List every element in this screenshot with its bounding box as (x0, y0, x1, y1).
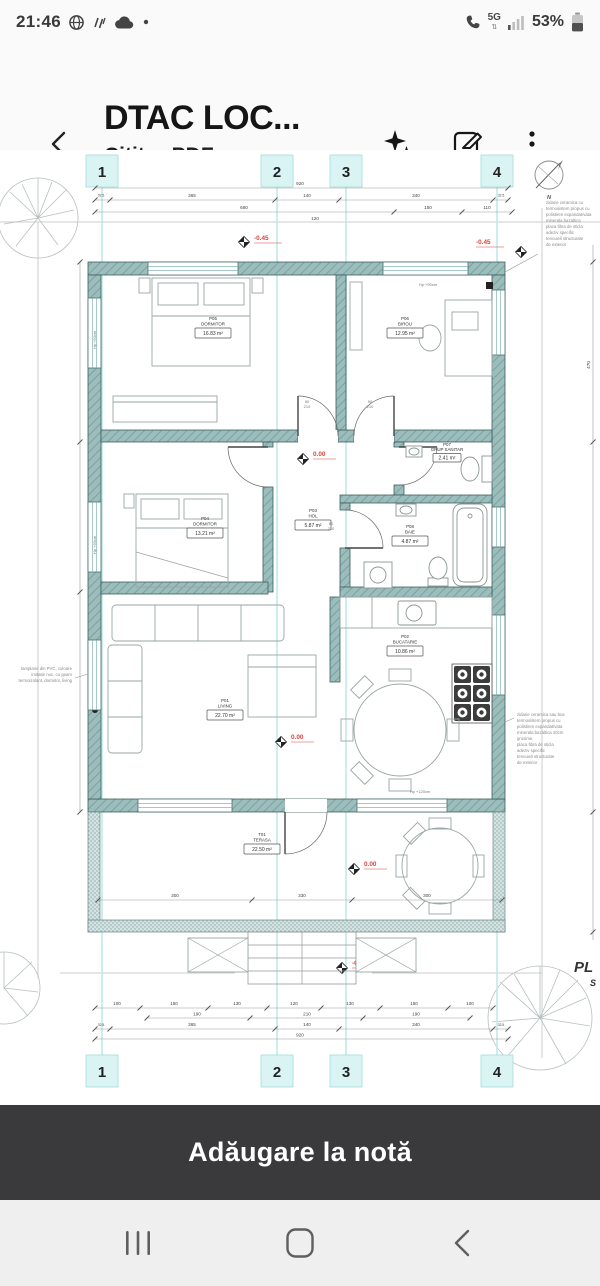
add-to-note-button[interactable]: Adăugare la notă (0, 1105, 600, 1200)
dim-label: 32.5 (498, 1023, 505, 1027)
bedroom2-furniture (124, 494, 228, 587)
svg-text:adeziv specific: adeziv specific (546, 230, 575, 235)
kitchen-furniture (340, 597, 492, 791)
dim-label: 210 (303, 1012, 311, 1017)
dim-label: 150 (424, 205, 432, 210)
svg-text:polistiren expandat/vata: polistiren expandat/vata (517, 724, 563, 729)
material-note-top-right: zidarie ceramica cu termosistem propus c… (505, 200, 592, 272)
room-label-p06: P06 BIROU 12.95 m² (387, 316, 423, 338)
grid-axes: 1 2 3 4 1 2 3 4 (86, 155, 513, 1087)
sheet-title: PL S (574, 959, 596, 988)
svg-text:13.21 m²: 13.21 m² (195, 531, 215, 537)
globe-icon (68, 14, 85, 31)
call-icon (465, 14, 481, 30)
windows (88, 262, 505, 812)
dim-label: 920 (296, 1033, 304, 1038)
dim-label: 130 (346, 1001, 354, 1006)
level-value: 0.00 (291, 734, 304, 741)
svg-text:Hp +90cm: Hp +90cm (92, 330, 97, 349)
battery-percent: 53% (532, 13, 564, 31)
svg-text:22.70 m²: 22.70 m² (215, 713, 235, 719)
document-title: DTAC LOC... (104, 100, 300, 137)
grid-label: 1 (98, 1064, 106, 1081)
dim-label: 150 (410, 1001, 418, 1006)
grid-label: 2 (273, 164, 281, 181)
level-value: 0.00 (364, 861, 377, 868)
svg-text:10.86 m²: 10.86 m² (395, 649, 415, 655)
dim-label: 120 (290, 1001, 298, 1006)
svg-text:210: 210 (367, 404, 374, 409)
svg-text:2.41 m²: 2.41 m² (439, 456, 456, 462)
grid-label: 4 (493, 1064, 502, 1081)
svg-text:Hp +120cm: Hp +120cm (410, 789, 431, 794)
room-label-p03: P03 HOL 5.87 m² (295, 508, 331, 530)
svg-text:TERASA: TERASA (253, 838, 271, 843)
level-value: -0.45 (476, 239, 491, 246)
svg-text:placa fibra de sticla: placa fibra de sticla (546, 224, 583, 229)
grid-label: 2 (273, 1064, 281, 1081)
svg-text:P01: P01 (221, 698, 229, 703)
svg-text:zidarie ceramica cu: zidarie ceramica cu (546, 200, 584, 205)
bedroom1-furniture (113, 278, 263, 422)
svg-text:Hp +90cm: Hp +90cm (419, 282, 438, 287)
svg-text:210: 210 (304, 404, 311, 409)
dim-label: 300 (171, 893, 179, 898)
svg-text:BAIE: BAIE (405, 530, 415, 535)
dim-label: 330 (298, 893, 306, 898)
svg-text:BUCATARIE: BUCATARIE (393, 640, 418, 645)
signal-strength-icon (508, 14, 525, 30)
svg-text:P05: P05 (209, 316, 217, 321)
svg-text:de exterior: de exterior (546, 242, 567, 247)
dim-label: 110 (483, 205, 491, 210)
network-arrows-icon: ⇅ (491, 24, 497, 31)
room-label-t01: T01 TERASA 22.50 m² (244, 832, 280, 854)
room-label-p01: P01 LIVING 22.70 m² (207, 698, 243, 720)
dim-label: 32.5 (98, 1023, 105, 1027)
dim-label: 190 (412, 1012, 420, 1017)
dim-label: 300 (423, 893, 431, 898)
dim-label: 140 (303, 1022, 311, 1027)
dim-label: 470 (586, 361, 591, 369)
svg-text:12.95 m²: 12.95 m² (395, 331, 415, 337)
home-button[interactable] (280, 1223, 320, 1263)
svg-text:adeziv specific: adeziv specific (517, 748, 546, 753)
stove (452, 664, 492, 723)
svg-text:P03: P03 (309, 508, 317, 513)
svg-text:tamplarie din PVC, culoare: tamplarie din PVC, culoare (21, 666, 73, 671)
north-arrow: N (535, 160, 563, 201)
svg-text:placa fibra de sticla: placa fibra de sticla (517, 742, 554, 747)
svg-text:de exterior: de exterior (517, 760, 538, 765)
grid-label: 3 (342, 164, 350, 181)
add-to-note-label: Adăugare la notă (188, 1137, 412, 1168)
svg-text:16.83 m²: 16.83 m² (203, 331, 223, 337)
svg-text:minerala bazaltica: minerala bazaltica (546, 218, 581, 223)
dim-label: 130 (233, 1001, 241, 1006)
floor-plan-drawing: 1 2 3 4 1 2 3 4 N 920 32.5 365 140 340 3… (0, 150, 600, 1105)
grid-label: 4 (493, 164, 502, 181)
top-dimensions: 920 32.5 365 140 340 32.5 660 150 110 12… (93, 181, 515, 221)
svg-text:polistiren expandat/vata: polistiren expandat/vata (546, 212, 592, 217)
home-icon (285, 1227, 315, 1259)
svg-text:P04: P04 (201, 516, 209, 521)
svg-text:T01: T01 (258, 832, 266, 837)
network-5g-label: 5G (488, 13, 501, 23)
level-value: 0.00 (313, 451, 326, 458)
svg-text:GRUP SANITAR: GRUP SANITAR (431, 447, 464, 452)
battery-icon (571, 12, 584, 32)
svg-text:LIVING: LIVING (218, 704, 233, 709)
room-label-p02: P02 BUCATARIE 10.86 m² (387, 634, 423, 656)
grid-label: 1 (98, 164, 106, 181)
back-chevron-icon (449, 1228, 475, 1258)
dim-label: 150 (170, 1001, 178, 1006)
recents-button[interactable] (118, 1223, 158, 1263)
svg-text:PL: PL (574, 959, 593, 976)
room-label-p08: P08 BAIE 4.87 m² (392, 524, 428, 546)
exterior-walls (88, 262, 505, 812)
bottom-dimensions: 100 150 130 120 130 150 100 190 210 190 … (93, 1001, 511, 1042)
svg-text:DORMITOR: DORMITOR (201, 322, 225, 327)
app-header: DTAC LOC... Cititor PDF (0, 44, 600, 150)
entrance-steps (248, 932, 356, 984)
svg-text:210: 210 (328, 526, 335, 531)
status-time: 21:46 (16, 12, 61, 32)
svg-text:imitatie nuc, cu geam: imitatie nuc, cu geam (31, 672, 72, 677)
terrace-dimensions: 300 330 300 (96, 893, 505, 903)
svg-text:Hp +90cm: Hp +90cm (92, 535, 97, 554)
svg-text:P08: P08 (406, 524, 414, 529)
network-type-indicator: 5G ⇅ (488, 13, 501, 31)
room-label-p05: P05 DORMITOR 16.83 m² (195, 316, 231, 338)
dim-label: 32.5 (98, 194, 105, 198)
level-value: -0.45 (254, 235, 269, 242)
svg-text:P02: P02 (401, 634, 409, 639)
dim-label: 120 (311, 216, 319, 221)
dim-label: 365 (188, 193, 196, 198)
dim-label: 32.5 (498, 194, 505, 198)
notification-dot-icon (143, 19, 149, 25)
dim-label: 340 (412, 193, 420, 198)
dim-label: 660 (240, 205, 248, 210)
svg-text:minerala bazaltica 10cm: minerala bazaltica 10cm (517, 730, 564, 735)
svg-text:zidarie ceramica sau bca: zidarie ceramica sau bca (517, 712, 565, 717)
dim-label: 100 (466, 1001, 474, 1006)
living-furniture (108, 605, 316, 753)
svg-text:22.50 m²: 22.50 m² (252, 847, 272, 853)
svg-text:termosistem propus cu: termosistem propus cu (546, 206, 590, 211)
svg-text:4.87 m²: 4.87 m² (402, 539, 419, 545)
svg-text:S: S (590, 978, 596, 988)
weather-rain-icon (92, 15, 107, 30)
svg-text:termoizolant, dormitor, living: termoizolant, dormitor, living (19, 678, 73, 683)
joinery-note-left: tamplarie din PVC, culoare imitatie nuc,… (19, 666, 89, 683)
dim-label: 140 (303, 193, 311, 198)
svg-text:grosime,: grosime, (517, 736, 533, 741)
svg-text:BIROU: BIROU (398, 322, 412, 327)
dim-label: 365 (188, 1022, 196, 1027)
dim-label: 100 (113, 1001, 121, 1006)
dim-label: 190 (193, 1012, 201, 1017)
status-bar: 21:46 5G ⇅ 53% (0, 0, 600, 44)
svg-text:5.87 m²: 5.87 m² (305, 523, 322, 529)
recents-icon (123, 1230, 153, 1256)
svg-text:DORMITOR: DORMITOR (193, 522, 217, 527)
grid-label: 3 (342, 1064, 350, 1081)
svg-text:tencuieli structurate: tencuieli structurate (546, 236, 584, 241)
dim-label: 340 (412, 1022, 420, 1027)
level-markers: -0.45 -0.45 0.00 0.00 0.00 -0.45 (239, 235, 527, 974)
pdf-page-viewer[interactable]: 1 2 3 4 1 2 3 4 N 920 32.5 365 140 340 3… (0, 150, 600, 1106)
nav-back-button[interactable] (442, 1223, 482, 1263)
dim-label: 920 (296, 181, 304, 186)
android-nav-bar (0, 1200, 600, 1286)
svg-text:tencuieli structurate: tencuieli structurate (517, 754, 555, 759)
cloud-icon (114, 15, 136, 30)
svg-text:HOL: HOL (308, 514, 318, 519)
room-label-p07: P07 GRUP SANITAR 2.41 m² (431, 442, 464, 462)
material-note-mid-right: zidarie ceramica sau bca termosistem pro… (505, 712, 565, 765)
terrace: 300 330 300 (88, 812, 505, 984)
svg-text:P06: P06 (401, 316, 409, 321)
svg-text:termosistem propus cu: termosistem propus cu (517, 718, 561, 723)
